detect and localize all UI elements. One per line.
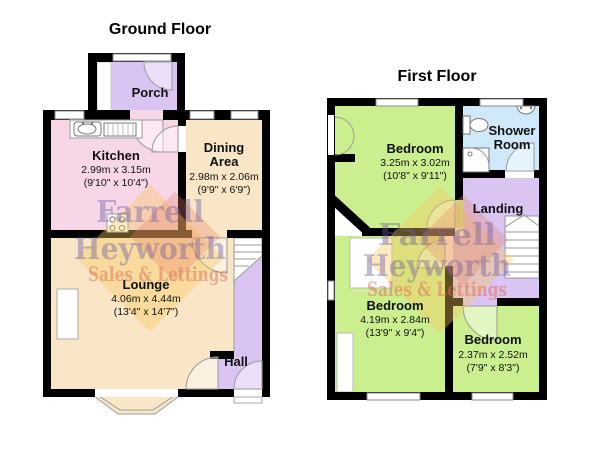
lounge-label: Lounge — [123, 277, 170, 292]
drainer — [104, 123, 136, 136]
watermark-farrell: Farrell — [96, 195, 204, 230]
bedroom2-cupboard — [337, 333, 353, 392]
kitchen-label: Kitchen — [92, 148, 140, 163]
bedroom1-metric: 3.25m x 3.02m — [380, 157, 450, 169]
bay-opening — [95, 389, 178, 397]
toilet-cistern — [463, 116, 470, 134]
basin-tap — [520, 107, 522, 109]
sink-basin — [78, 124, 96, 134]
floorplan-drawing: Farrell Heyworth Sales & Lettings Farrel… — [0, 0, 600, 461]
shower-tray — [463, 148, 489, 172]
gf-right-wall — [262, 110, 270, 397]
kitchen-metric: 2.99m x 3.15m — [81, 164, 151, 176]
gf-left-wall — [43, 110, 51, 397]
front-door-step — [234, 397, 262, 403]
kitchen-dining-wall-top — [178, 120, 186, 126]
bedroom1-label: Bedroom — [386, 141, 443, 156]
lounge-imperial: (13'4" x 14'7") — [114, 306, 179, 318]
sink-tap — [82, 122, 84, 124]
porch-right-wall — [177, 53, 185, 118]
kitchen-window — [55, 111, 84, 119]
bedroom2-label: Bedroom — [366, 298, 423, 313]
ground-floor-title: Ground Floor — [109, 21, 211, 38]
bedroom2-window — [367, 393, 420, 400]
bedroom3-metric: 2.37m x 2.52m — [458, 349, 528, 361]
ff-bottom-wall — [327, 392, 547, 400]
porch-step — [97, 62, 111, 114]
porch-label: Porch — [132, 85, 169, 100]
watermark-farrell: Farrell — [378, 218, 496, 253]
shower-window — [480, 99, 523, 106]
dining-imperial: (9'9" x 6'9") — [198, 184, 251, 196]
dining-label-1: Dining — [204, 140, 244, 155]
hall-label: Hall — [224, 354, 248, 369]
shower-label-2: Room — [494, 137, 531, 152]
sink-tap — [91, 122, 93, 124]
first-floor-title: First Floor — [397, 68, 476, 85]
porch-kitchen-doorway — [130, 110, 163, 120]
floorplan-page: Farrell Heyworth Sales & Lettings Farrel… — [0, 0, 600, 461]
cupboard-opening — [328, 115, 334, 155]
porch-left-wall — [88, 53, 97, 118]
dining-window-right — [231, 111, 258, 119]
bedroom1-window — [376, 99, 418, 106]
bedroom2-imperial: (13'9" x 9'4") — [366, 327, 425, 339]
bedroom3-window — [472, 393, 513, 400]
ff-right-wall — [539, 98, 547, 400]
lounge-metric: 4.06m x 4.44m — [111, 293, 181, 305]
landing-label: Landing — [473, 201, 524, 216]
dining-window-left — [190, 111, 214, 119]
bedroom3-imperial: (7'9" x 8'3") — [467, 362, 520, 374]
bedroom1-shower-wall — [455, 106, 463, 200]
chimney-breast — [57, 289, 78, 339]
bedroom3-label: Bedroom — [464, 332, 521, 347]
porch-window — [113, 54, 171, 61]
kitchen-imperial: (9'10" x 10'4") — [84, 177, 149, 189]
front-doorway — [234, 389, 262, 397]
shower-label-1: Shower — [489, 123, 536, 138]
bedroom2-side-window — [328, 281, 334, 300]
dining-label-2: Area — [210, 154, 240, 169]
toilet-bowl — [470, 119, 488, 132]
dining-metric: 2.98m x 2.06m — [189, 171, 259, 183]
basin-tap — [530, 107, 532, 109]
bedroom1-imperial: (10'8" x 9'11") — [383, 170, 447, 182]
bedroom2-metric: 4.19m x 2.84m — [360, 314, 430, 326]
